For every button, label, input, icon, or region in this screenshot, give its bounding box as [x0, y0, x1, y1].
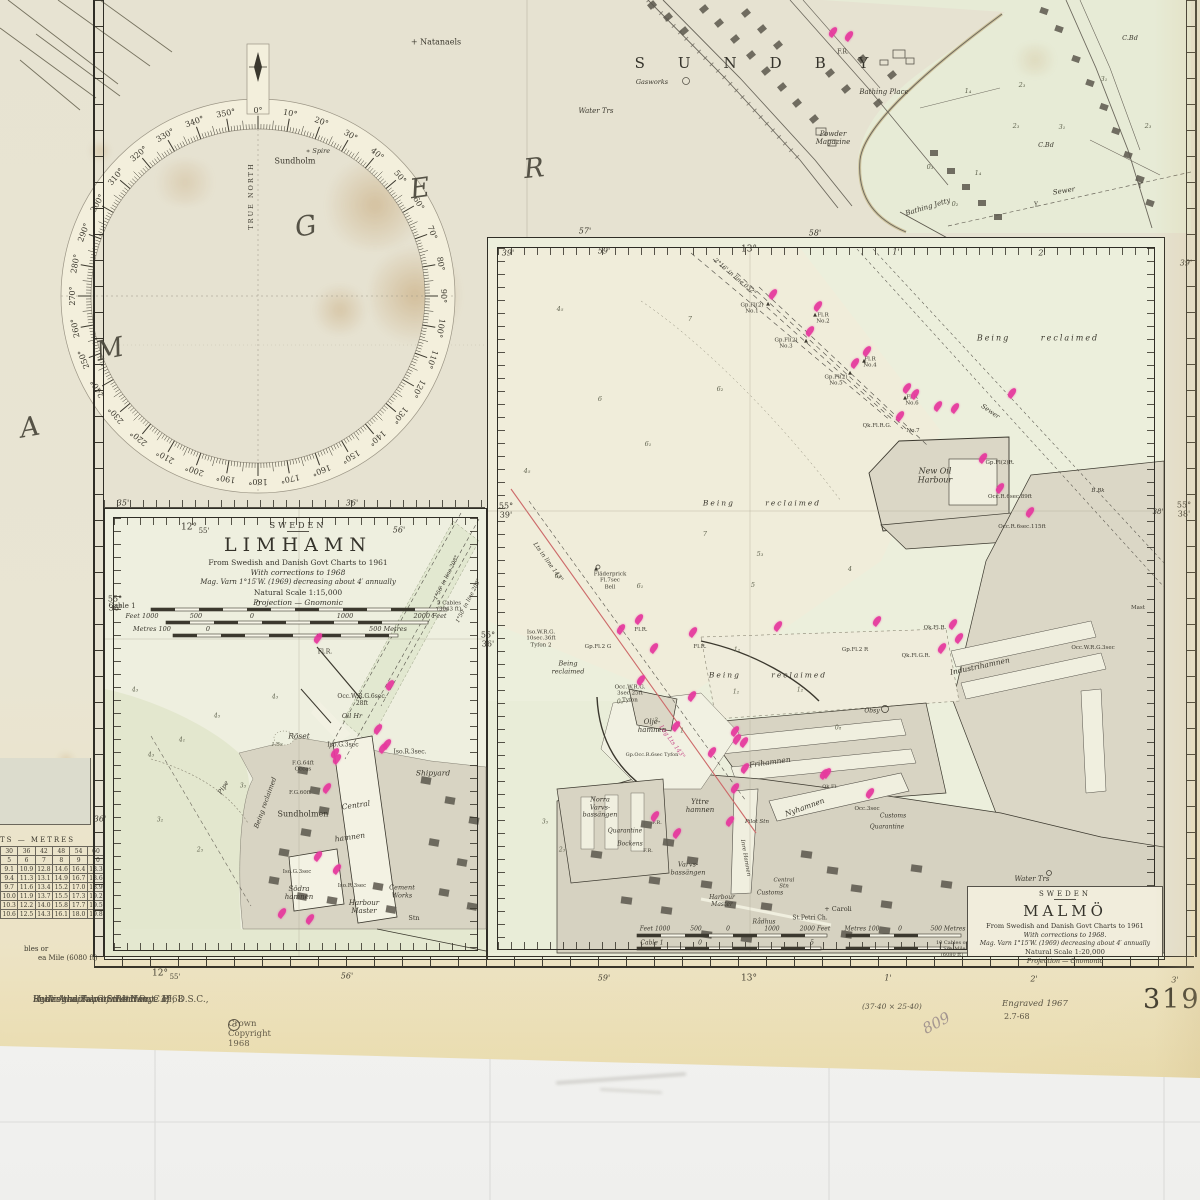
table-cell: 14.0 — [35, 901, 52, 910]
graticule-label: 12° — [152, 969, 168, 980]
chart-border-right — [1186, 0, 1197, 957]
graticule-label: 2' — [1030, 974, 1037, 983]
table-cell: 30 — [1, 847, 18, 856]
table-cell: 54 — [70, 847, 87, 856]
pencil-note: 809 — [919, 1008, 953, 1037]
graticule-label: 55' — [170, 973, 181, 981]
table-cell: 16.7 — [70, 874, 87, 883]
tile-seam — [0, 1121, 1200, 1123]
table-cell: 14.6 — [53, 865, 70, 874]
table-cell: 10.9 — [18, 865, 35, 874]
engraved-note: Engraved 1967 — [1002, 999, 1068, 1009]
wall-mark — [600, 1088, 662, 1093]
tile-seam — [154, 1040, 156, 1200]
table-cell: 15.2 — [53, 883, 70, 892]
table-cell: 14.9 — [53, 874, 70, 883]
tile-seam — [489, 1040, 491, 1200]
ruler — [1147, 248, 1154, 947]
published-text: Hydrographer of the Navy — [33, 995, 154, 1005]
table-cell: 36 — [18, 847, 35, 856]
limhamn-projection: Projection — Gnomonic — [163, 598, 433, 608]
graticule-label: 56' — [341, 971, 353, 980]
ruler — [114, 518, 121, 948]
correction-date: 2.7-68 — [1004, 1012, 1030, 1021]
table-cell: 5 — [1, 856, 18, 865]
table-cell: 13.1 — [35, 874, 52, 883]
ruler — [498, 248, 1152, 255]
table-cell: 42 — [35, 847, 52, 856]
compass-rose: 0°10°20°30°40°50°60°70°80°90°100°110°120… — [0, 16, 518, 576]
table-cell: 11.9 — [18, 892, 35, 901]
table-cell: 17.0 — [70, 883, 87, 892]
chart-number: 3194 — [1143, 984, 1200, 1015]
conversion-table-grid: 30364248546056789109.110.912.814.616.418… — [0, 846, 105, 919]
table-cell: 6 — [18, 856, 35, 865]
ruler — [498, 248, 505, 947]
limhamn-scale: Natural Scale 1:15,000 — [163, 588, 433, 598]
margin-diagram — [0, 758, 91, 825]
malmo-inset — [487, 237, 1165, 960]
malmo-source: From Swedish and Danish Govt Charts to 1… — [968, 922, 1162, 931]
table-cell: 15.5 — [53, 892, 70, 901]
limhamn-country: SWEDEN — [163, 521, 433, 532]
svg-text:0°: 0° — [253, 106, 262, 115]
table-cell: 13.7 — [35, 892, 52, 901]
table-cell: 9.1 — [1, 865, 18, 874]
table-cell: 11.6 — [18, 883, 35, 892]
table-cell: 17.7 — [70, 901, 87, 910]
table-cell: 18.0 — [70, 910, 87, 919]
svg-text:TRUE NORTH: TRUE NORTH — [247, 162, 255, 229]
conversion-table-title: TS — METRES — [0, 836, 96, 844]
svg-text:90°: 90° — [439, 289, 448, 303]
table-cell: 12.2 — [18, 901, 35, 910]
table-cell: 9 — [70, 856, 87, 865]
table-cell: 48 — [53, 847, 70, 856]
chart-border-bottom — [94, 956, 1194, 968]
table-cell: 13.4 — [35, 883, 52, 892]
chart-border-left — [93, 0, 104, 957]
svg-text:270°: 270° — [68, 286, 77, 305]
table-cell: 14.3 — [35, 910, 52, 919]
limhamn-title: LIMHAMN — [163, 534, 433, 556]
ruler — [104, 500, 485, 508]
table-cell: 8 — [53, 856, 70, 865]
malmo-title: MALMÖ — [968, 902, 1162, 920]
chart-paper: 0°10°20°30°40°50°60°70°80°90°100°110°120… — [0, 0, 1200, 1082]
table-cell: 16.4 — [70, 865, 87, 874]
ruler — [470, 518, 477, 948]
malmo-title-block: SWEDEN MALMÖ From Swedish and Danish Gov… — [967, 886, 1163, 957]
table-cell: 15.8 — [53, 901, 70, 910]
table-cell: 11.3 — [18, 874, 35, 883]
table-cell: 16.1 — [53, 910, 70, 919]
table-cell: 17.3 — [70, 892, 87, 901]
malmo-magvar: Mag. Varn 1°15′W. (1969) decreasing abou… — [968, 940, 1162, 948]
table-cell: 10.3 — [1, 901, 18, 910]
wall-mark — [556, 1072, 686, 1084]
table-cell: 12.8 — [35, 865, 52, 874]
graticule-label: 1' — [884, 973, 891, 982]
svg-text:180°: 180° — [248, 477, 267, 486]
malmo-inner-border — [497, 247, 1155, 950]
conversion-table: TS — METRES 30364248546056789109.110.912… — [0, 836, 96, 919]
chart-photo-scene: 0°10°20°30°40°50°60°70°80°90°100°110°120… — [0, 0, 1200, 1200]
malmo-corrections: With corrections to 1968. — [968, 931, 1162, 940]
table-cell: 10.6 — [1, 910, 18, 919]
table-cell: 7 — [35, 856, 52, 865]
table-cell: 12.5 — [18, 910, 35, 919]
ruler — [114, 943, 475, 950]
table-cell: 9.4 — [1, 874, 18, 883]
graticule-label: 59' — [598, 973, 610, 982]
graticule-label: 13° — [741, 974, 757, 985]
limhamn-corrections: With corrections to 1968 — [163, 568, 433, 578]
malmo-country: SWEDEN — [968, 890, 1162, 900]
limhamn-title-block: SWEDEN LIMHAMN From Swedish and Danish G… — [163, 521, 433, 608]
limhamn-source: From Swedish and Danish Govt Charts to 1… — [163, 558, 433, 568]
dimensions-note: (37·40 × 25·40) — [862, 1002, 922, 1011]
table-cell: 9.7 — [1, 883, 18, 892]
table-cell: 10.0 — [1, 892, 18, 901]
limhamn-magvar: Mag. Varn 1°15′W. (1969) decreasing abou… — [163, 578, 433, 587]
copyright-text: Crown Copyright 1968 — [228, 1019, 271, 1049]
